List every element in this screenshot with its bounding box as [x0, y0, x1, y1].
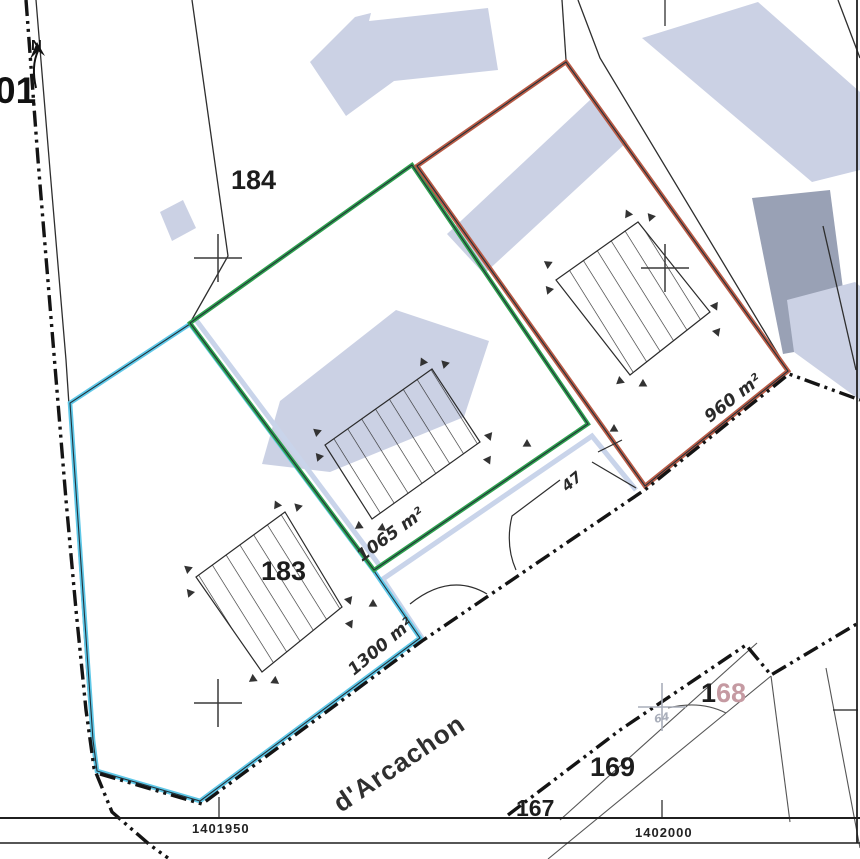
- grid-coordinate-right: 1402000: [635, 825, 693, 840]
- parcel-167-label: 167: [516, 795, 554, 821]
- parcel-line: [771, 676, 790, 822]
- parcel-line: [826, 668, 860, 848]
- driveway-arc: [410, 585, 487, 604]
- lot-47-label: 47: [557, 467, 586, 495]
- street-name-label: d'Arcachon: [328, 708, 471, 818]
- building-footprint: [160, 200, 196, 241]
- parcel-184-label: 184: [231, 165, 276, 195]
- building-footprint: [642, 2, 860, 182]
- survey-cross: [194, 234, 242, 282]
- parcel-168-label: 168: [701, 678, 746, 708]
- parcel-169-label: 169: [590, 752, 635, 782]
- parcel-168-suffix: 68: [716, 678, 746, 708]
- parcel-183-label: 183: [261, 556, 306, 586]
- parcel-line: [560, 643, 757, 820]
- parcel-201-label: 01: [0, 70, 36, 111]
- survey-cross: [194, 679, 242, 727]
- cadastral-plan-page: N 01 184 183 169 167 168 960 m² 1065 m² …: [0, 0, 860, 859]
- hatched-building: [196, 512, 342, 672]
- building-footprint: [310, 8, 498, 116]
- limit-line-west: [26, 0, 168, 858]
- hatched-building: [556, 222, 710, 375]
- driveway-arc: [509, 480, 560, 570]
- grid-coordinate-left: 1401950: [192, 821, 250, 836]
- parcel-168-prefix: 1: [701, 678, 716, 708]
- road-line: [190, 0, 228, 323]
- north-label: N: [31, 37, 42, 54]
- limit-line-southeast: [508, 622, 860, 815]
- plan-drawing: N 01 184 183 169 167 168 960 m² 1065 m² …: [0, 0, 860, 859]
- road-line: [562, 0, 566, 60]
